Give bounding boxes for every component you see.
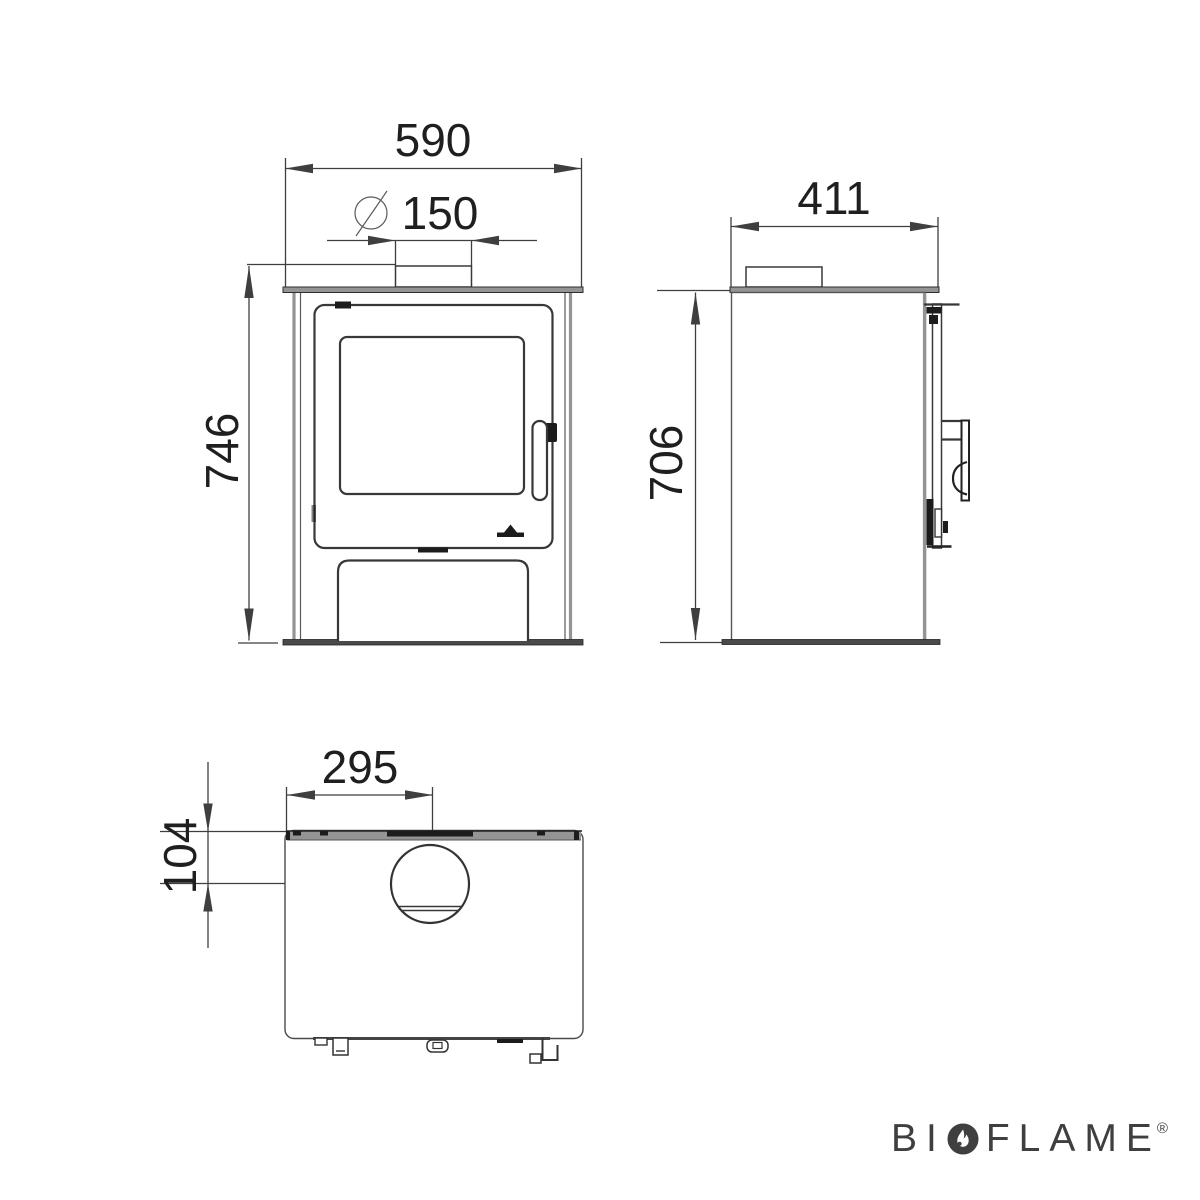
front-height-dim-label: 746 (196, 413, 248, 490)
front-edge-fittings (313, 1038, 558, 1063)
back-edge-dark-segment (387, 831, 473, 837)
front-view: 590 150 746 (196, 114, 583, 645)
top-flue-x-dim-label: 295 (322, 741, 399, 793)
side-height-dimension: 706 (640, 291, 731, 643)
diameter-symbol-icon (355, 191, 387, 236)
brand-text-left: BI (891, 1117, 946, 1161)
top-view: 295 104 (154, 741, 583, 1063)
flue-collar-front (396, 266, 472, 287)
top-flue-y-dim-label: 104 (154, 818, 206, 895)
brand-logo: BI FLAME ® (891, 1116, 1172, 1162)
door-left-hinge-nub (312, 505, 317, 522)
stove-dimension-drawing: 590 150 746 (0, 0, 1200, 1200)
top-stove-body (285, 831, 583, 1064)
door-top-hinge-tab (335, 302, 351, 309)
base-plinth-side (722, 640, 940, 645)
side-panel (732, 293, 926, 641)
flue-outlet-circle (391, 845, 469, 923)
door-glass-window (340, 337, 524, 494)
front-flue-dimension: 150 (327, 187, 537, 266)
door-handle-front (533, 421, 548, 500)
ash-lip-panel (338, 561, 528, 642)
top-plate-front (283, 287, 583, 293)
door-bottom-latch (418, 548, 448, 553)
side-height-dim-label: 706 (640, 425, 692, 502)
flame-in-circle-icon (947, 1123, 979, 1155)
side-depth-dim-label: 411 (797, 172, 870, 224)
side-stove-body (722, 267, 969, 645)
door-handle-side (942, 421, 970, 501)
top-plate-side (730, 287, 939, 293)
front-width-dim-label: 590 (395, 114, 472, 166)
flue-collar-side (746, 267, 822, 287)
drawing-svg: 590 150 746 (0, 0, 1200, 1200)
front-flue-dim-label: 150 (402, 187, 479, 239)
brand-text-right: FLAME (986, 1117, 1161, 1161)
side-view: 411 706 (640, 172, 969, 645)
front-stove-body (283, 266, 583, 645)
registered-trademark: ® (1157, 1120, 1168, 1137)
